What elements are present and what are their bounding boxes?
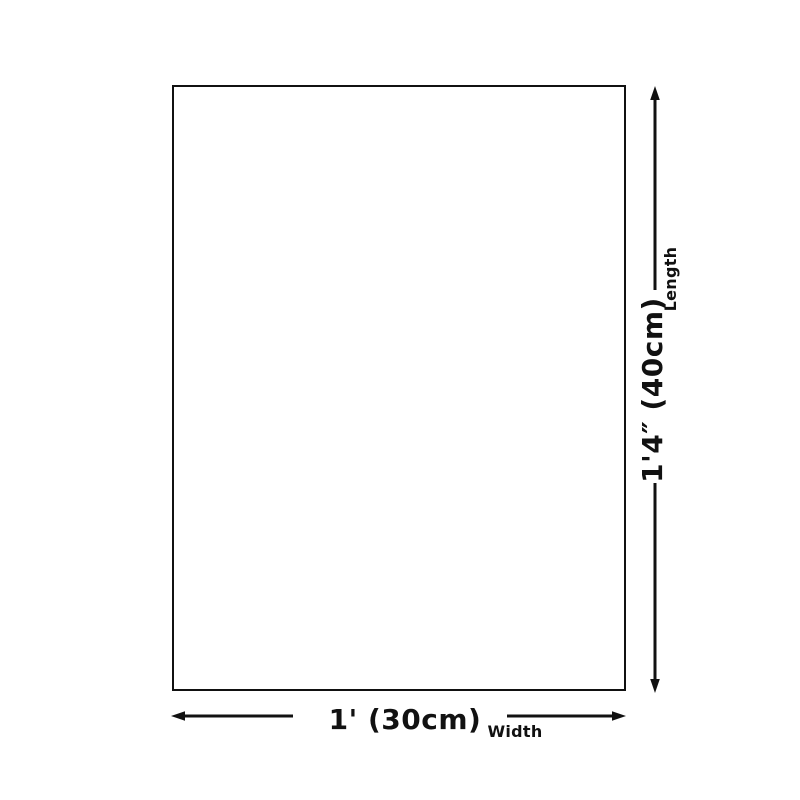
- width-label: Width: [487, 724, 542, 740]
- width-value: 1' (30cm): [329, 706, 482, 734]
- length-label: Length: [663, 247, 679, 312]
- arrow-up-icon: [650, 86, 660, 100]
- length-value: 1'4″ (40cm): [639, 297, 667, 483]
- arrow-right-icon: [612, 711, 626, 721]
- arrow-down-icon: [650, 679, 660, 693]
- arrow-left-icon: [171, 711, 185, 721]
- dimension-diagram: 1'4″ (40cm) Length 1' (30cm) Width: [0, 0, 800, 800]
- dimension-arrows: [0, 0, 800, 800]
